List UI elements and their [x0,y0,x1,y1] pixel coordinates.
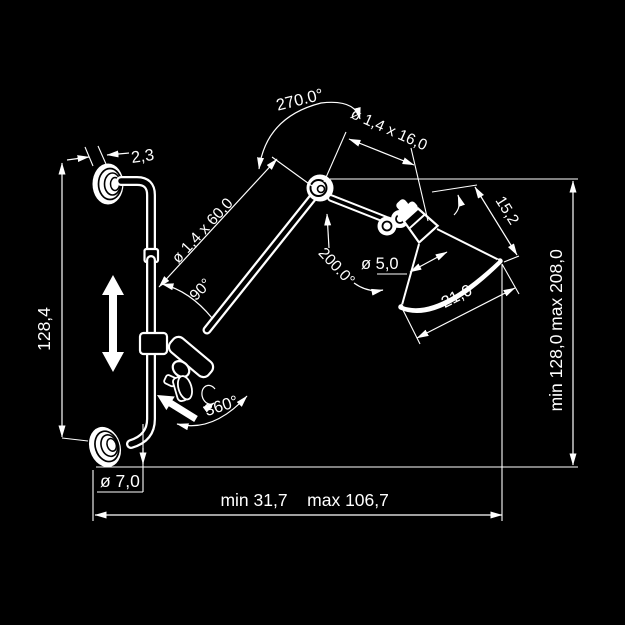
dim-label-reach-max: max 106,7 [307,490,389,510]
dim-label-height-min: min 128,0 [546,334,566,411]
dim-label-height-max: max 208,0 [546,249,566,331]
dim-label-shade-neck: ø 5,0 [361,255,399,273]
dim-label-rail-length: 128,4 [34,307,54,351]
lamp-technical-drawing-page: 2,3 128,4 270.0° ø 1,4 x 60,0 90° [0,0,625,625]
dim-label-flange-thickness: 2,3 [130,146,155,167]
dim-label-flange-diameter: ø 7,0 [100,471,140,491]
lamp-technical-drawing: 2,3 128,4 270.0° ø 1,4 x 60,0 90° [0,0,625,625]
dim-label-reach-min: min 31,7 [220,490,287,510]
